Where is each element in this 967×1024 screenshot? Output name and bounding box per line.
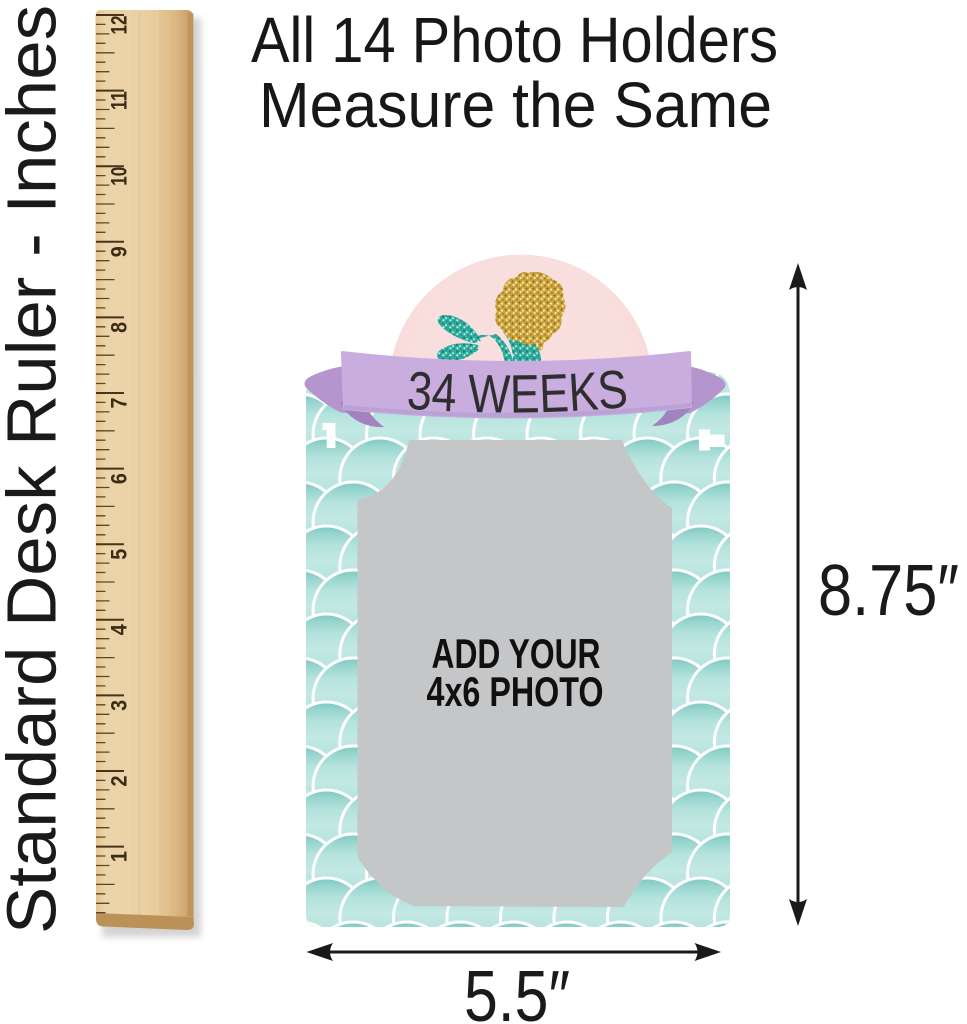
svg-text:4: 4 <box>107 624 132 636</box>
svg-text:9: 9 <box>107 246 132 257</box>
svg-text:5.5″: 5.5″ <box>464 957 570 1024</box>
svg-text:8.75″: 8.75″ <box>818 551 959 631</box>
svg-text:8: 8 <box>107 322 132 333</box>
svg-text:6: 6 <box>107 473 132 484</box>
svg-text:1: 1 <box>107 851 132 862</box>
svg-text:4x6 PHOTO: 4x6 PHOTO <box>427 668 604 715</box>
svg-text:3: 3 <box>107 700 132 711</box>
svg-text:12: 12 <box>107 16 132 35</box>
svg-text:2: 2 <box>107 776 132 787</box>
svg-text:7: 7 <box>107 398 132 409</box>
svg-text:5: 5 <box>107 549 132 560</box>
svg-text:11: 11 <box>107 91 132 110</box>
svg-text:34 WEEKS: 34 WEEKS <box>405 359 630 425</box>
svg-text:All 14 Photo Holders: All 14 Photo Holders <box>251 4 778 76</box>
svg-text:Measure the Same: Measure the Same <box>259 69 772 141</box>
svg-text:10: 10 <box>107 167 132 186</box>
svg-text:Standard Desk Ruler - Inches: Standard Desk Ruler - Inches <box>0 5 71 934</box>
